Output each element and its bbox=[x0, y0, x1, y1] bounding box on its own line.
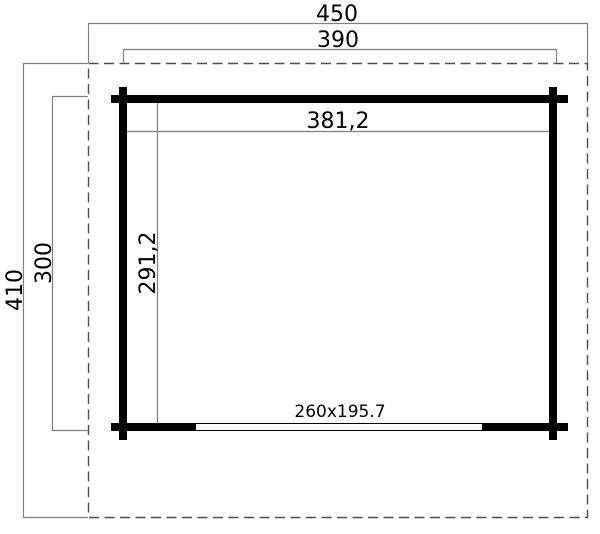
floor-plan-drawing: 450 390 381,2 410 300 291,2 260x195.7 bbox=[0, 0, 600, 534]
door-opening bbox=[196, 424, 483, 431]
wall-right bbox=[549, 87, 557, 440]
floor-plan-canvas: 450 390 381,2 410 300 291,2 260x195.7 bbox=[0, 0, 600, 534]
wall-top bbox=[111, 95, 568, 103]
wall-left bbox=[119, 87, 127, 440]
dim-line-total-depth bbox=[24, 64, 89, 518]
dim-label-interior-width: 381,2 bbox=[307, 109, 370, 134]
dim-label-building-depth: 300 bbox=[32, 242, 57, 284]
door-size-label: 260x195.7 bbox=[294, 402, 385, 422]
dim-label-total-depth: 410 bbox=[3, 269, 28, 311]
dim-label-interior-depth: 291,2 bbox=[136, 232, 161, 295]
dim-label-total-width: 450 bbox=[316, 2, 358, 27]
dim-line-building-depth bbox=[53, 97, 89, 431]
dim-label-building-width: 390 bbox=[317, 28, 359, 53]
